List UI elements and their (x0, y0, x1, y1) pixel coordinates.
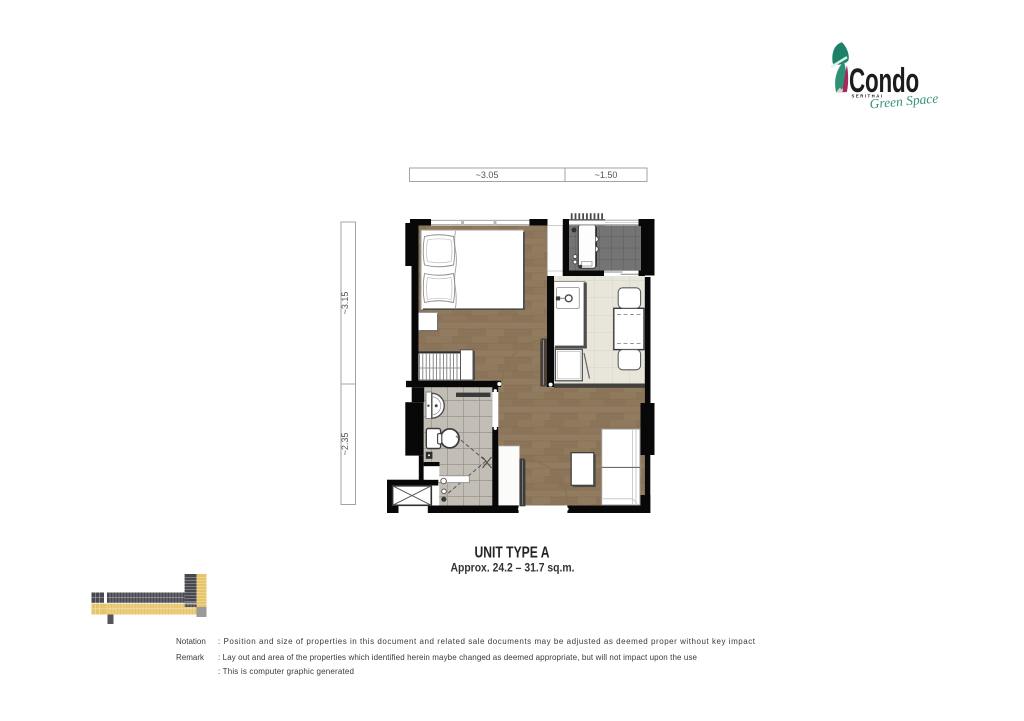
svg-text:: This is computer graphic gen: : This is computer graphic generated (218, 667, 354, 676)
svg-text:~3.15: ~3.15 (340, 292, 350, 315)
svg-text:: Lay out and area of the prop: : Lay out and area of the properties whi… (218, 653, 698, 662)
svg-text:UNIT TYPE A: UNIT TYPE A (475, 545, 550, 562)
svg-text:~2.35: ~2.35 (340, 433, 350, 456)
svg-text:~1.50: ~1.50 (595, 170, 618, 180)
svg-text:Remark: Remark (176, 653, 205, 662)
svg-text:: Position and size of propert: : Position and size of properties in thi… (218, 637, 756, 646)
svg-text:Notation: Notation (176, 637, 206, 646)
svg-text:~3.05: ~3.05 (476, 170, 499, 180)
svg-text:Approx. 24.2 – 31.7 sq.m.: Approx. 24.2 – 31.7 sq.m. (451, 563, 575, 575)
